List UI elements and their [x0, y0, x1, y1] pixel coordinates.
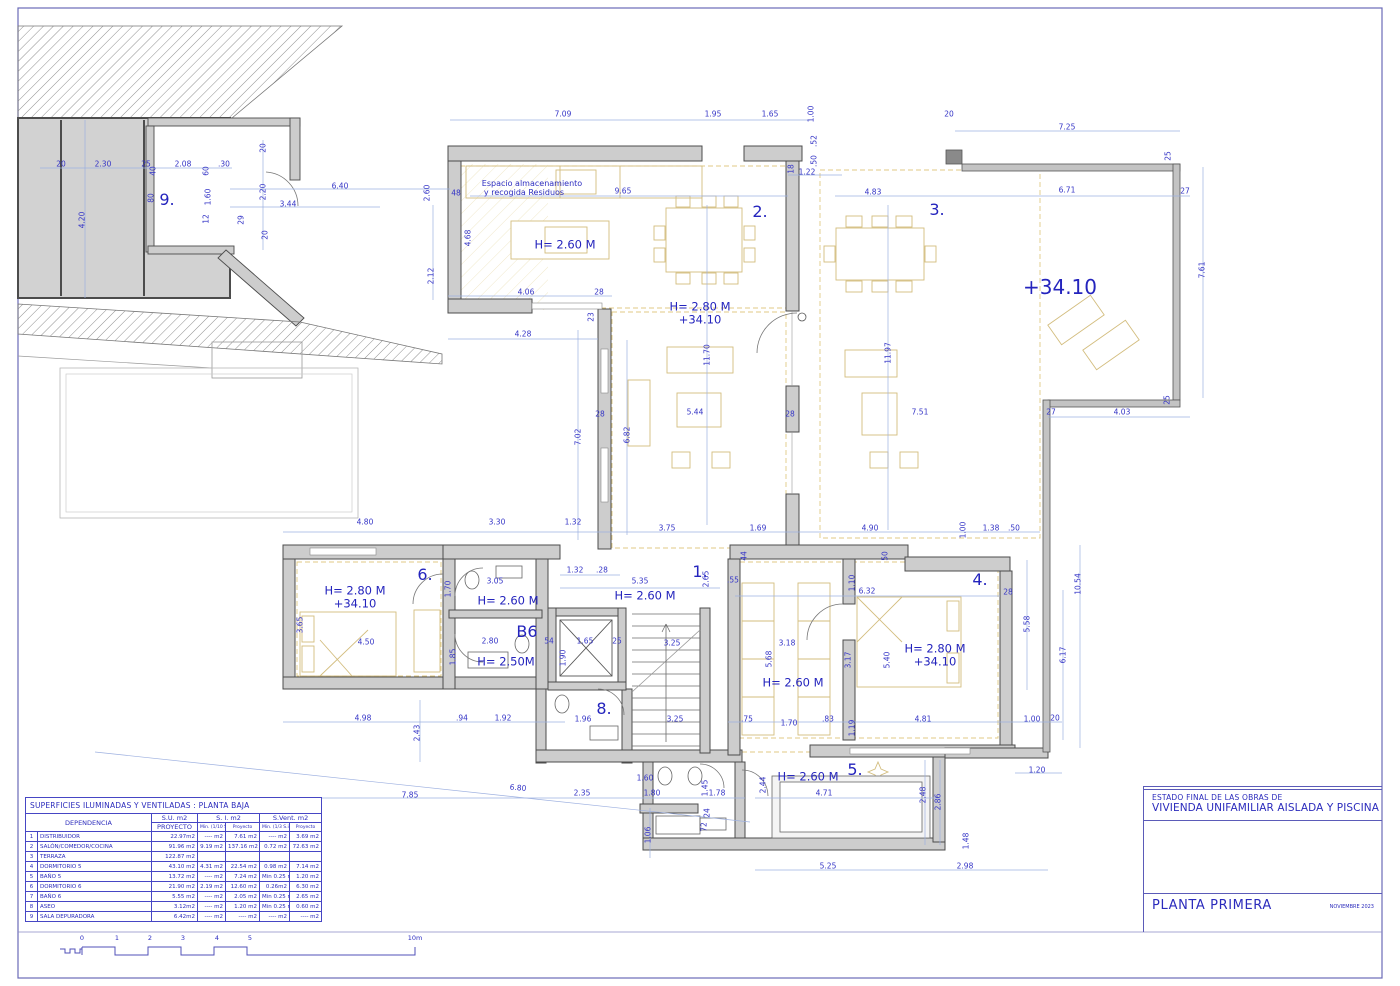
- dim-label: .30: [218, 160, 230, 168]
- project-title-line2: VIVIENDA UNIFAMILIAR AISLADA Y PISCINA: [1152, 802, 1379, 814]
- walls: [283, 146, 1048, 850]
- dim-label: 3.17: [844, 652, 852, 669]
- dim-label: 20: [944, 110, 954, 118]
- scale-label: 10m: [408, 934, 423, 942]
- level-label: +34.10: [1023, 277, 1097, 297]
- dim-label: 2.30: [95, 160, 112, 168]
- dim-label: 1.90: [559, 650, 567, 667]
- dim-label: 1.00: [959, 522, 967, 539]
- table-row: 8ASEO3.12m2---- m21.20 m2Min 0.25 m20.60…: [26, 902, 322, 912]
- note-label: Espacio almacenamiento: [482, 180, 582, 188]
- dim-label: 54: [544, 637, 554, 645]
- dim-label: 12: [202, 214, 210, 224]
- dim-label: 5.25: [820, 862, 837, 870]
- dim-label: 5.58: [1023, 616, 1031, 633]
- dim-label: 28: [595, 410, 605, 418]
- col-sv-min: Min. (1/3 S.ilum.): [260, 823, 290, 832]
- dim-label: 3.75: [659, 524, 676, 532]
- height-label: H= 2.80 M: [669, 301, 730, 313]
- dim-label: 25: [1163, 395, 1171, 405]
- height-label: H= 2.60 M: [477, 595, 538, 607]
- dim-label: 1.96: [575, 715, 592, 723]
- dim-label: 2.98: [957, 862, 974, 870]
- scale-label: 2: [148, 934, 152, 942]
- dim-label: .55: [727, 576, 739, 584]
- scale-label: 5: [248, 934, 252, 942]
- dim-label: 1.60: [637, 774, 654, 782]
- dim-label: 1.48: [962, 833, 970, 850]
- dim-label: 1.80: [644, 789, 661, 797]
- room-number: 5.: [847, 762, 862, 778]
- dim-label: 11.70: [703, 344, 711, 365]
- sheet-date: NOVIEMBRE 2023: [1330, 904, 1374, 910]
- dim-label: 28: [785, 410, 795, 418]
- table-row: 6DORMITORIO 621.90 m22.19 m212.60 m20.26…: [26, 882, 322, 892]
- table-row: 3TERRAZA122.87 m2: [26, 852, 322, 862]
- elevator: [560, 620, 612, 676]
- dim-label: 7.51: [912, 408, 929, 416]
- note-label: y recogida Residuos: [484, 189, 564, 197]
- dim-label: 60: [202, 166, 210, 176]
- dim-label: .75: [741, 715, 753, 723]
- dim-label: 6.17: [1059, 647, 1067, 664]
- dim-label: 1.69: [750, 524, 767, 532]
- dim-label: 2.44: [759, 777, 767, 794]
- drawing-sheet: 9.2.3.1.6.4.B68.5.+34.10H= 2.60 MH= 2.80…: [0, 0, 1400, 986]
- dim-label: 2.35: [574, 789, 591, 797]
- dim-label: 9.65: [615, 187, 632, 195]
- col-si-proyecto: Proyecto: [226, 823, 260, 832]
- dim-label: 2.12: [427, 268, 435, 285]
- dim-label: 4.90: [862, 524, 879, 532]
- areas-table: SUPERFICIES ILUMINADAS Y VENTILADAS : PL…: [25, 797, 322, 922]
- height-label: H= 2.50M: [477, 656, 534, 668]
- dim-label: 40: [149, 166, 157, 176]
- dim-label: 7.09: [555, 110, 572, 118]
- dim-label: 6.71: [1059, 186, 1076, 194]
- dim-label: 1.19: [848, 720, 856, 737]
- dim-label: 4.71: [816, 789, 833, 797]
- dim-label: 6.82: [623, 427, 631, 444]
- dim-label: .94: [456, 714, 468, 722]
- height-label: H= 2.60 M: [777, 771, 838, 783]
- dim-label: 10.54: [1074, 573, 1082, 594]
- dim-label: 5.35: [632, 577, 649, 585]
- dim-label: 25: [612, 637, 622, 645]
- dim-label: 7.85: [402, 791, 419, 799]
- dim-label: 4.06: [518, 288, 535, 296]
- title-block: ESTADO FINAL DE LAS OBRAS DE VIVIENDA UN…: [1143, 786, 1382, 932]
- dim-label: 1.78: [709, 789, 726, 797]
- col-si: S. I. m2: [198, 814, 260, 823]
- height-label: H= 2.60 M: [762, 677, 823, 689]
- col-sv-proyecto: Proyecto: [290, 823, 322, 832]
- dim-label: 7.61: [1198, 262, 1206, 279]
- dim-label: 27: [1046, 408, 1056, 416]
- dim-label: 4.28: [515, 330, 532, 338]
- height-label: H= 2.60 M: [534, 239, 595, 251]
- dim-label: 72: [700, 822, 708, 832]
- dim-label: 7.02: [574, 429, 582, 446]
- dim-label: 6.40: [332, 182, 349, 190]
- dim-label: 3.05: [487, 577, 504, 585]
- dim-label: 6.80: [509, 784, 526, 793]
- dim-label: 3.25: [664, 639, 681, 647]
- dim-label: 2.43: [413, 725, 421, 742]
- room-number: 2.: [752, 204, 767, 220]
- room-number: 3.: [929, 202, 944, 218]
- dim-label: 4.20: [78, 212, 86, 229]
- room-number: 6.: [417, 567, 432, 583]
- dim-label: 1.20: [1029, 766, 1046, 774]
- dim-label: 1.70: [444, 581, 452, 598]
- dim-label: .28: [596, 566, 608, 574]
- dim-label: 3.25: [667, 715, 684, 723]
- col-su-proyecto: PROYECTO: [152, 823, 198, 832]
- dim-label: 1.65: [577, 637, 594, 645]
- dim-label: .52: [810, 135, 818, 147]
- dim-label: 11.97: [884, 342, 892, 363]
- table-row: 4DORMITORIO 543.10 m24.31 m222.54 m20.98…: [26, 862, 322, 872]
- dim-label: .50: [810, 155, 818, 167]
- dim-label: 3.18: [779, 639, 796, 647]
- col-svent: S.Vent. m2: [260, 814, 322, 823]
- dim-label: 50: [881, 551, 889, 561]
- dim-label: 1.32: [567, 566, 584, 574]
- dim-label: 27: [1180, 187, 1190, 195]
- dim-label: 2.80: [482, 637, 499, 645]
- dim-label: 28: [594, 288, 604, 296]
- dim-label: 1.06: [644, 827, 652, 844]
- dim-label: 23: [587, 312, 595, 322]
- dim-label: 28: [1003, 588, 1013, 596]
- room-number: 9.: [159, 192, 174, 208]
- dim-label: 3.44: [280, 200, 297, 208]
- dim-label: 1.92: [495, 714, 512, 722]
- dim-label: 1.60: [204, 189, 212, 206]
- dim-label: 5.40: [883, 652, 891, 669]
- dim-label: 7.25: [1059, 123, 1076, 131]
- table-row: 1DISTRIBUIDOR22.97m2---- m27.61 m2---- m…: [26, 832, 322, 842]
- col-si-min: Min. (1/10 S.U.): [198, 823, 226, 832]
- dim-label: 4.98: [355, 714, 372, 722]
- scale-label: 1: [115, 934, 119, 942]
- dim-label: 25: [1164, 151, 1172, 161]
- height-label: +34.10: [679, 314, 722, 326]
- table-row: 7BAÑO 65.55 m2---- m22.05 m2Min 0.25 m22…: [26, 892, 322, 902]
- col-su: S.U. m2: [152, 814, 198, 823]
- dim-label: 1.10: [848, 575, 856, 592]
- scale-label: 3: [181, 934, 185, 942]
- height-label: +34.10: [334, 598, 377, 610]
- dim-label: 2.65: [702, 571, 710, 588]
- dim-label: 1.00: [807, 106, 815, 123]
- dim-label: 1.65: [762, 110, 779, 118]
- dim-label: 24: [703, 808, 711, 818]
- dim-label: 1.85: [449, 649, 457, 666]
- hatch-existing-building: [18, 26, 442, 518]
- height-label: +34.10: [914, 656, 957, 668]
- stairs: [632, 614, 700, 746]
- scale-label: 0: [80, 934, 84, 942]
- dim-label: 6.32: [859, 587, 876, 595]
- dim-label: .83: [822, 715, 834, 723]
- dim-label: 20: [1050, 714, 1060, 722]
- dim-label: 5.68: [765, 651, 773, 668]
- dim-label: 20: [261, 230, 269, 240]
- height-label: H= 2.80 M: [324, 585, 385, 597]
- height-label: H= 2.80 M: [904, 643, 965, 655]
- dim-label: 4.83: [865, 188, 882, 196]
- dim-label: 1.38: [983, 524, 1000, 532]
- table-row: 9SALA DEPURADORA6.42m2---- m2---- m2----…: [26, 912, 322, 922]
- dim-label: 1.95: [705, 110, 722, 118]
- sheet-name: PLANTA PRIMERA: [1152, 898, 1272, 913]
- dim-label: 4.81: [915, 715, 932, 723]
- dim-label: 1.00: [1024, 715, 1041, 723]
- project-title-line1: ESTADO FINAL DE LAS OBRAS DE: [1152, 793, 1282, 802]
- dim-label: 20: [56, 160, 66, 168]
- dim-label: 3.30: [489, 518, 506, 526]
- dim-label: 1.22: [799, 168, 816, 176]
- dim-label: 4.50: [358, 638, 375, 646]
- dim-label: 48: [451, 189, 461, 197]
- dim-label: 3.65: [296, 617, 304, 634]
- dim-label: 20: [259, 143, 267, 153]
- scale-bar: [60, 947, 415, 955]
- furniture: [300, 166, 1139, 782]
- dim-label: 4.80: [357, 518, 374, 526]
- dim-label: 4.68: [464, 230, 472, 247]
- table-row: 5BAÑO 513.72 m2---- m27.24 m2Min 0.25 m2…: [26, 872, 322, 882]
- dim-label: 5.44: [687, 408, 704, 416]
- dim-label: 4.03: [1114, 408, 1131, 416]
- dim-label: 44: [740, 551, 748, 561]
- room-number: 4.: [972, 572, 987, 588]
- height-label: H= 2.60 M: [614, 590, 675, 602]
- scale-label: 4: [215, 934, 219, 942]
- dim-label: 2.48: [919, 787, 927, 804]
- dim-label: 2.08: [175, 160, 192, 168]
- col-dependencia: DEPENDENCIA: [26, 814, 152, 832]
- dim-label: 2.20: [259, 184, 267, 201]
- dim-label: 80: [147, 193, 155, 203]
- table-row: 2SALÓN/COMEDOR/COCINA91.96 m29.19 m2137.…: [26, 842, 322, 852]
- dim-label: .50: [1008, 524, 1020, 532]
- room-number: B6: [516, 624, 537, 640]
- dim-label: 1.32: [565, 518, 582, 526]
- dim-label: 29: [237, 215, 245, 225]
- dim-label: 18: [787, 164, 795, 174]
- areas-table-title: SUPERFICIES ILUMINADAS Y VENTILADAS : PL…: [26, 798, 322, 814]
- room-number: 8.: [596, 701, 611, 717]
- dim-label: 2.60: [423, 185, 431, 202]
- dim-label: 1.45: [701, 780, 709, 797]
- dim-label: 2.86: [934, 794, 942, 811]
- dim-label: 1.70: [781, 719, 798, 727]
